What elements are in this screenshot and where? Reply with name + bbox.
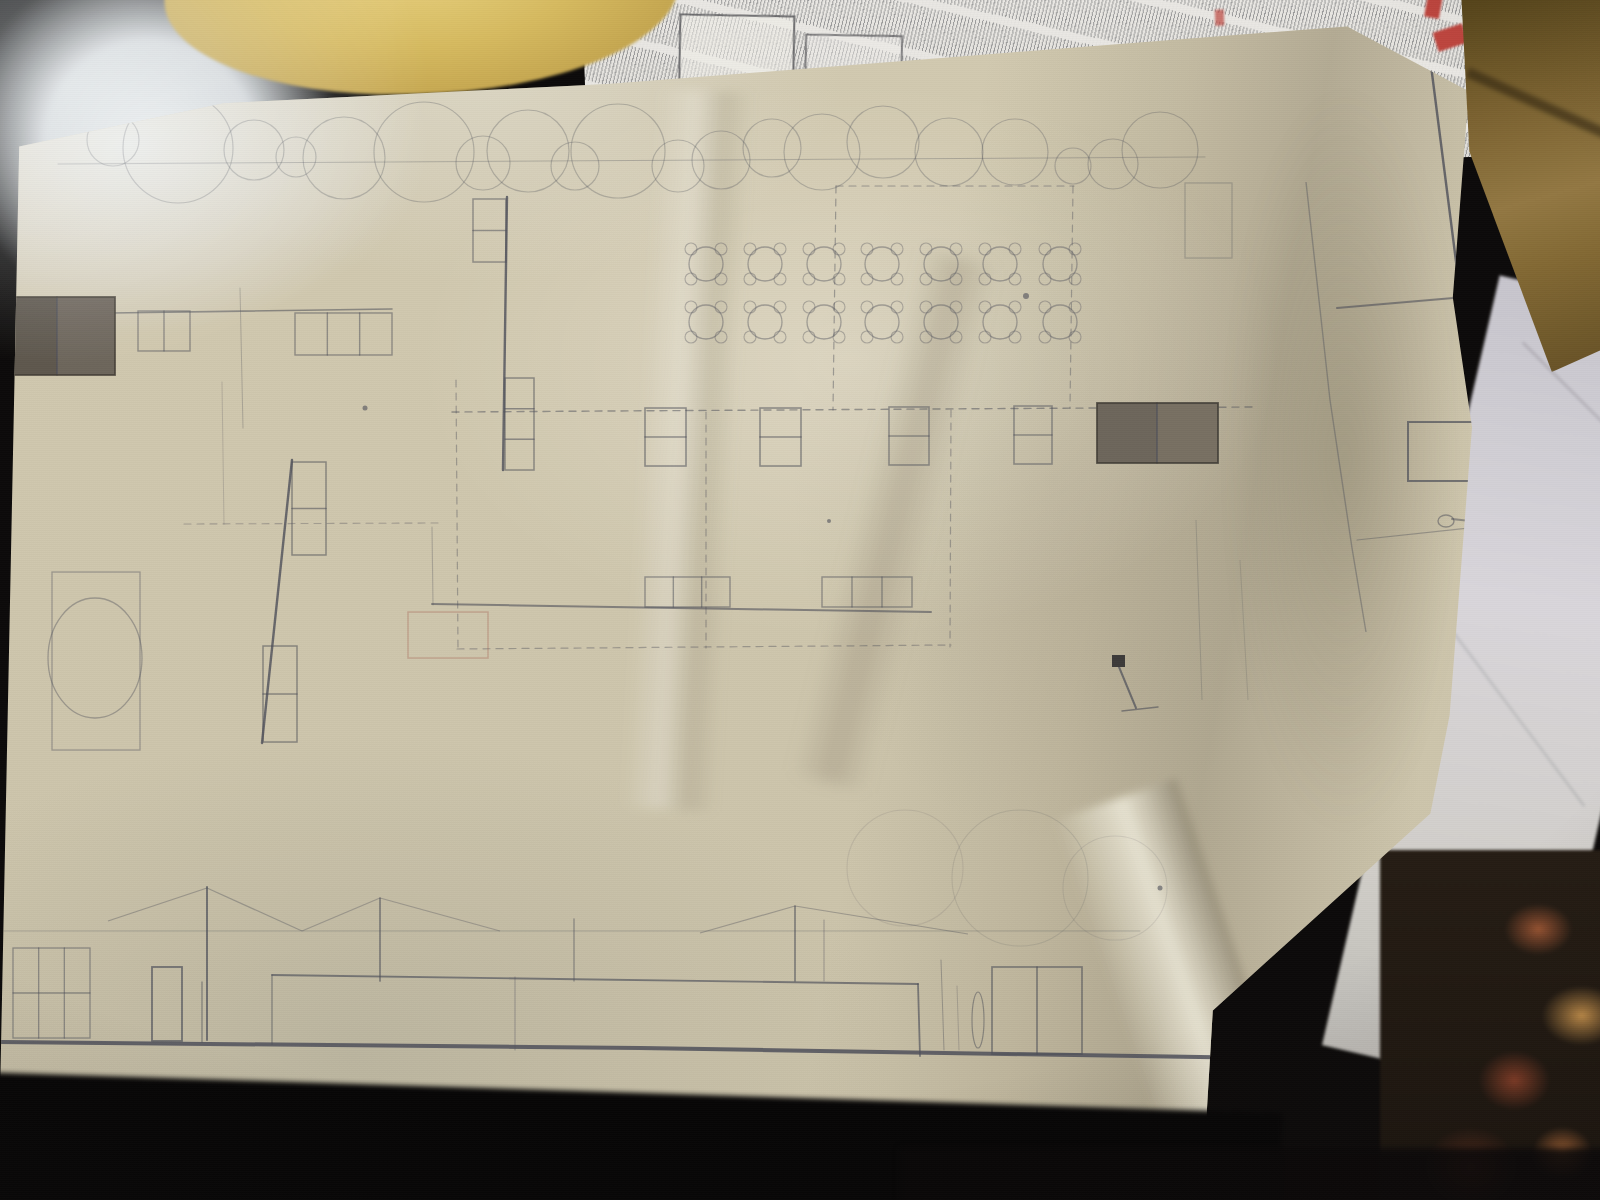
newspaper-red-headline-fragment <box>1424 0 1447 19</box>
newspaper-red-mark <box>1215 9 1225 25</box>
paper-edge-line <box>1439 614 1585 807</box>
photo-of-site-plan <box>0 0 1600 1200</box>
desk-shadow-band <box>900 1148 1600 1200</box>
newspaper-red-headline-fragment <box>1433 23 1469 52</box>
envelope-fold <box>1465 68 1600 167</box>
